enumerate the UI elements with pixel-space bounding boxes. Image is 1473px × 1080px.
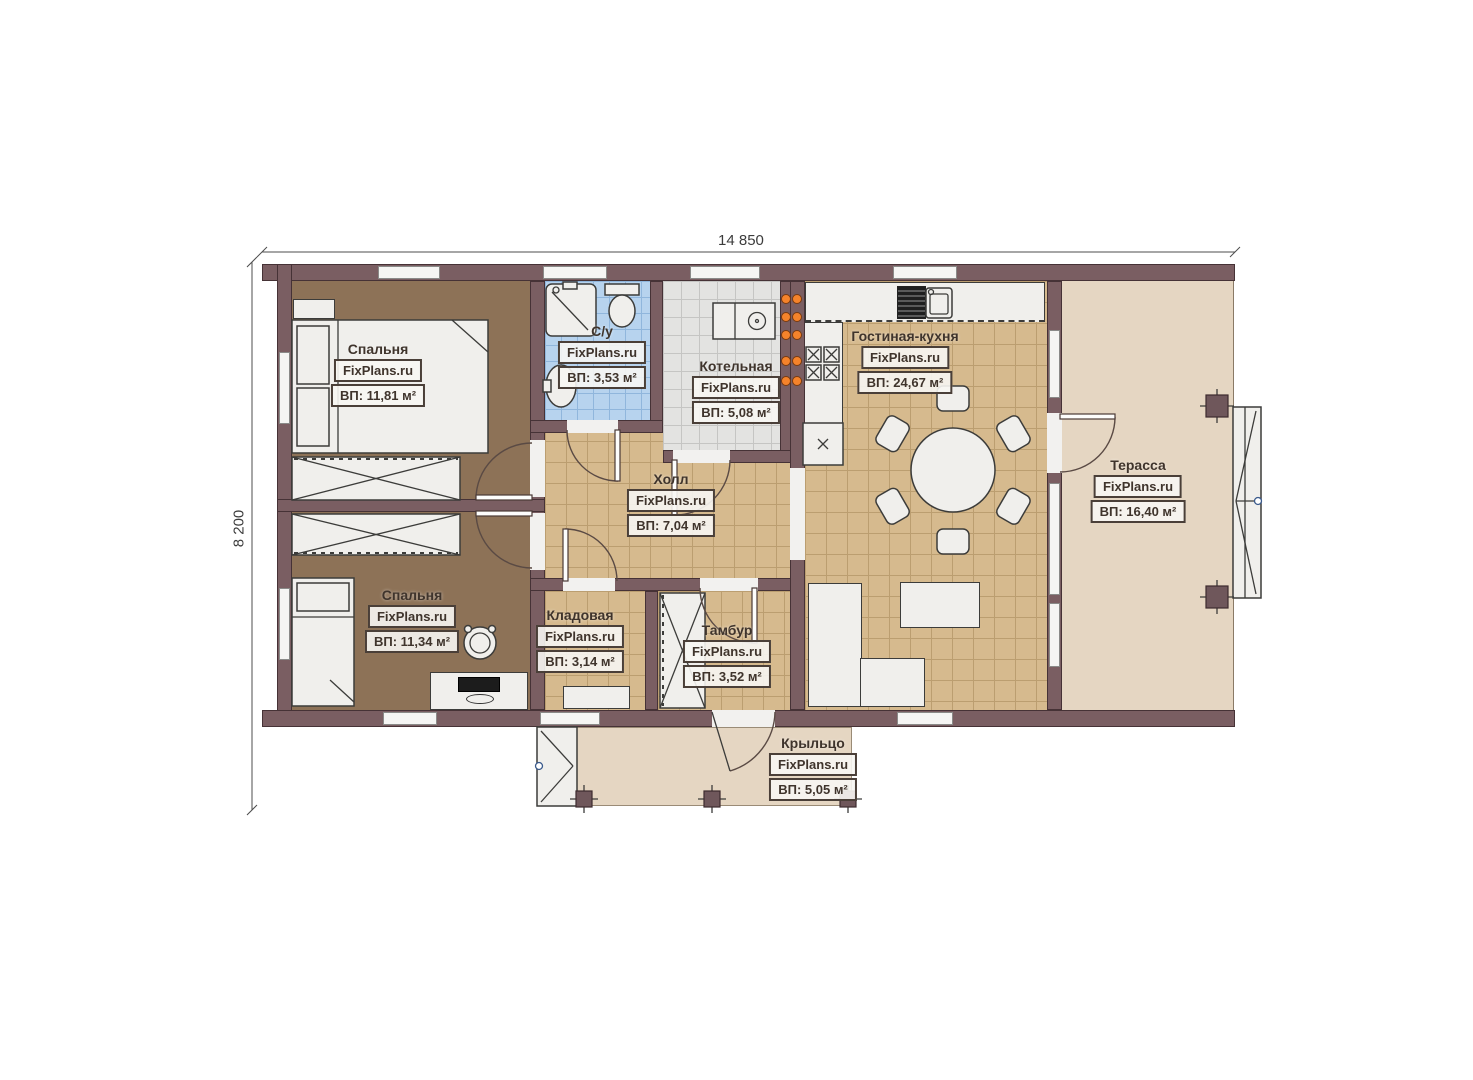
room-area: ВП: 3,53 м² <box>558 366 646 389</box>
wall-between-bedrooms <box>277 499 545 512</box>
window-kitchen-top <box>893 266 957 279</box>
stove-appliance <box>897 286 926 319</box>
room-name: Кладовая <box>546 607 613 623</box>
window-bedroom1-top <box>378 266 440 279</box>
watermark: FixPlans.ru <box>536 625 624 648</box>
window-living-bottom <box>897 712 953 725</box>
dimension-height: 8 200 <box>230 510 247 548</box>
watermark: FixPlans.ru <box>1094 475 1182 498</box>
window-storage-bottom <box>540 712 600 725</box>
room-label-terrace: Терасса FixPlans.ru ВП: 16,40 м² <box>1091 457 1186 523</box>
watermark: FixPlans.ru <box>368 605 456 628</box>
room-name: Котельная <box>699 358 772 374</box>
watermark: FixPlans.ru <box>683 640 771 663</box>
dimension-width: 14 850 <box>718 232 764 249</box>
watermark: FixPlans.ru <box>627 489 715 512</box>
sofa-vertical <box>808 583 862 707</box>
room-name: С/у <box>591 323 613 339</box>
room-label-vestibule: Тамбур FixPlans.ru ВП: 3,52 м² <box>683 622 771 688</box>
room-area: ВП: 3,14 м² <box>536 650 624 673</box>
room-label-hall: Холл FixPlans.ru ВП: 7,04 м² <box>627 471 715 537</box>
watermark: FixPlans.ru <box>861 346 949 369</box>
window-bathroom-top <box>543 266 607 279</box>
room-name: Крыльцо <box>781 735 845 751</box>
door-gap-entrance <box>712 710 775 727</box>
room-area: ВП: 16,40 м² <box>1091 500 1186 523</box>
door-gap-storage <box>563 578 615 591</box>
room-label-bedroom2: Спальня FixPlans.ru ВП: 11,34 м² <box>365 587 459 653</box>
storage-shelf <box>563 686 630 709</box>
room-name: Спальня <box>348 341 408 357</box>
room-area: ВП: 11,34 м² <box>365 630 459 653</box>
window-boiler-top <box>690 266 760 279</box>
terrace-stairs <box>1233 407 1262 598</box>
room-area: ВП: 5,05 м² <box>769 778 857 801</box>
watermark: FixPlans.ru <box>769 753 857 776</box>
monitor-stand <box>466 694 494 704</box>
room-area: ВП: 5,08 м² <box>692 401 780 424</box>
room-name: Холл <box>653 471 688 487</box>
door-gap-bedroom1 <box>530 440 545 497</box>
room-area: ВП: 7,04 м² <box>627 514 715 537</box>
door-gap-boiler <box>673 450 730 463</box>
watermark: FixPlans.ru <box>334 359 422 382</box>
room-name: Терасса <box>1110 457 1166 473</box>
floor-plan: 14 850 8 200 Спальня FixPlans.ru ВП: 11,… <box>0 0 1473 1080</box>
room-label-porch: Крыльцо FixPlans.ru ВП: 5,05 м² <box>769 735 857 801</box>
room-name: Тамбур <box>702 622 753 638</box>
wall-bath-boiler <box>650 281 663 433</box>
kitchen-counter-left <box>803 322 843 465</box>
room-label-storage: Кладовая FixPlans.ru ВП: 3,14 м² <box>536 607 624 673</box>
room-name: Гостиная-кухня <box>851 328 958 344</box>
room-name: Спальня <box>382 587 442 603</box>
room-label-boiler: Котельная FixPlans.ru ВП: 5,08 м² <box>692 358 780 424</box>
room-area: ВП: 24,67 м² <box>858 371 953 394</box>
door-gap-bathroom <box>567 420 618 433</box>
window-bedroom1-left <box>279 352 290 424</box>
wall-storage-vestibule <box>645 591 658 710</box>
window-living-terrace-3 <box>1049 603 1060 667</box>
watermark: FixPlans.ru <box>558 341 646 364</box>
window-living-terrace-1 <box>1049 330 1060 398</box>
room-label-bathroom: С/у FixPlans.ru ВП: 3,53 м² <box>558 323 646 389</box>
window-bedroom2-left <box>279 588 290 660</box>
opening-hall-living <box>790 468 805 560</box>
watermark: FixPlans.ru <box>692 376 780 399</box>
window-living-terrace-2 <box>1049 483 1060 595</box>
window-bedroom2-bottom <box>383 712 437 725</box>
door-gap-terrace <box>1047 413 1062 473</box>
sofa-chaise <box>860 658 925 707</box>
room-label-living-kitchen: Гостиная-кухня FixPlans.ru ВП: 24,67 м² <box>851 328 958 394</box>
room-area: ВП: 11,81 м² <box>331 384 425 407</box>
nightstand <box>293 299 335 319</box>
room-area: ВП: 3,52 м² <box>683 665 771 688</box>
door-gap-bedroom2 <box>530 513 545 570</box>
door-gap-vestibule <box>700 578 758 591</box>
coffee-table <box>900 582 980 628</box>
room-label-bedroom1: Спальня FixPlans.ru ВП: 11,81 м² <box>331 341 425 407</box>
monitor <box>458 677 500 692</box>
